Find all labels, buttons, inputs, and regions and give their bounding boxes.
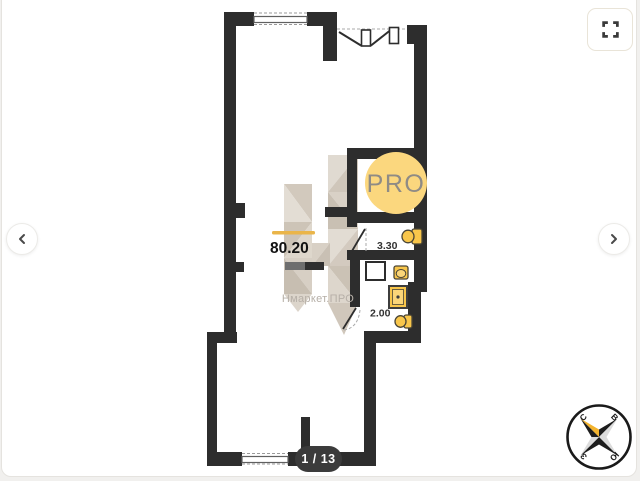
image-counter-badge: 1 / 13	[295, 446, 342, 472]
brand-watermark-label: Нмаркет.ПРО	[282, 293, 354, 305]
chevron-left-icon	[16, 233, 28, 245]
fullscreen-button[interactable]	[587, 8, 633, 51]
toilet-icon	[395, 315, 412, 328]
room-330-label: 3.30	[377, 240, 398, 252]
logo-bar-gray	[285, 262, 305, 270]
next-image-button[interactable]	[598, 223, 630, 255]
chevron-right-icon	[608, 233, 620, 245]
floor-plan-image: PRO 80.20 Нмаркет.ПРО 3.30 2.00	[0, 0, 640, 481]
window-top	[254, 11, 307, 27]
walls	[207, 12, 427, 466]
toilet-icon	[402, 229, 422, 244]
logo-gold-line	[272, 231, 315, 235]
pro-badge: PRO	[365, 152, 427, 214]
room-200-label: 2.00	[370, 308, 391, 320]
window-bottom	[242, 451, 288, 467]
compass-rose: С В Ю З	[564, 402, 634, 472]
compass-icon: С В Ю З	[564, 402, 634, 472]
area-label: 80.20	[270, 240, 309, 257]
logo-bar-dark	[305, 262, 324, 270]
fullscreen-icon	[601, 20, 620, 39]
sink-icon	[394, 266, 408, 279]
prev-image-button[interactable]	[6, 223, 38, 255]
floorplan-viewer: PRO 80.20 Нмаркет.ПРО 3.30 2.00 1 / 13	[0, 0, 640, 481]
shower-icon	[389, 286, 407, 308]
pro-badge-label: PRO	[367, 170, 426, 198]
duct-niche	[366, 262, 385, 280]
entry-door	[337, 28, 407, 47]
image-counter-text: 1 / 13	[301, 452, 335, 466]
